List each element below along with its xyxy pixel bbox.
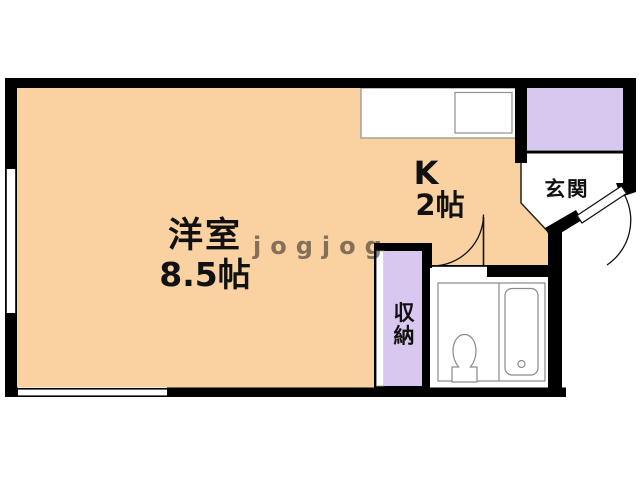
wall-kitchen-closet	[515, 78, 527, 163]
living-room-label: 洋室	[168, 215, 242, 256]
wall-bottom	[167, 388, 566, 398]
kitchen-sink-icon	[455, 93, 512, 134]
storage-door	[377, 251, 385, 386]
floorplan-svg: jogjog 洋室 8.5帖 K 2帖 玄関 収 納	[0, 0, 640, 480]
wall-left-upper	[5, 78, 17, 169]
left-window-outer-line	[5, 169, 7, 313]
entrance-closet	[527, 88, 623, 150]
left-window-inner-line	[15, 169, 17, 313]
wall-bottom-left-corner	[5, 388, 18, 398]
bathtub-drain-icon	[518, 361, 525, 368]
living-room-size-label: 8.5帖	[159, 255, 250, 294]
bottom-window-upper-line	[18, 388, 167, 390]
floorplan-image: jogjog 洋室 8.5帖 K 2帖 玄関 収 納	[0, 0, 640, 480]
toilet-icon	[452, 335, 477, 383]
entrance-label: 玄関	[545, 177, 590, 201]
kitchen-size-label: 2帖	[415, 188, 464, 222]
wall-top	[5, 78, 636, 88]
storage-label-char2: 納	[394, 324, 415, 348]
closet-bottom-line	[527, 151, 623, 154]
wall-left-lower	[5, 313, 17, 397]
kitchen-label: K	[414, 154, 440, 192]
watermark: jogjog	[252, 232, 391, 260]
bottom-window-lower-line	[18, 395, 167, 397]
wall-right	[623, 78, 636, 192]
bathroom-right-wall	[548, 232, 562, 397]
storage-label-char1: 収	[394, 301, 416, 325]
